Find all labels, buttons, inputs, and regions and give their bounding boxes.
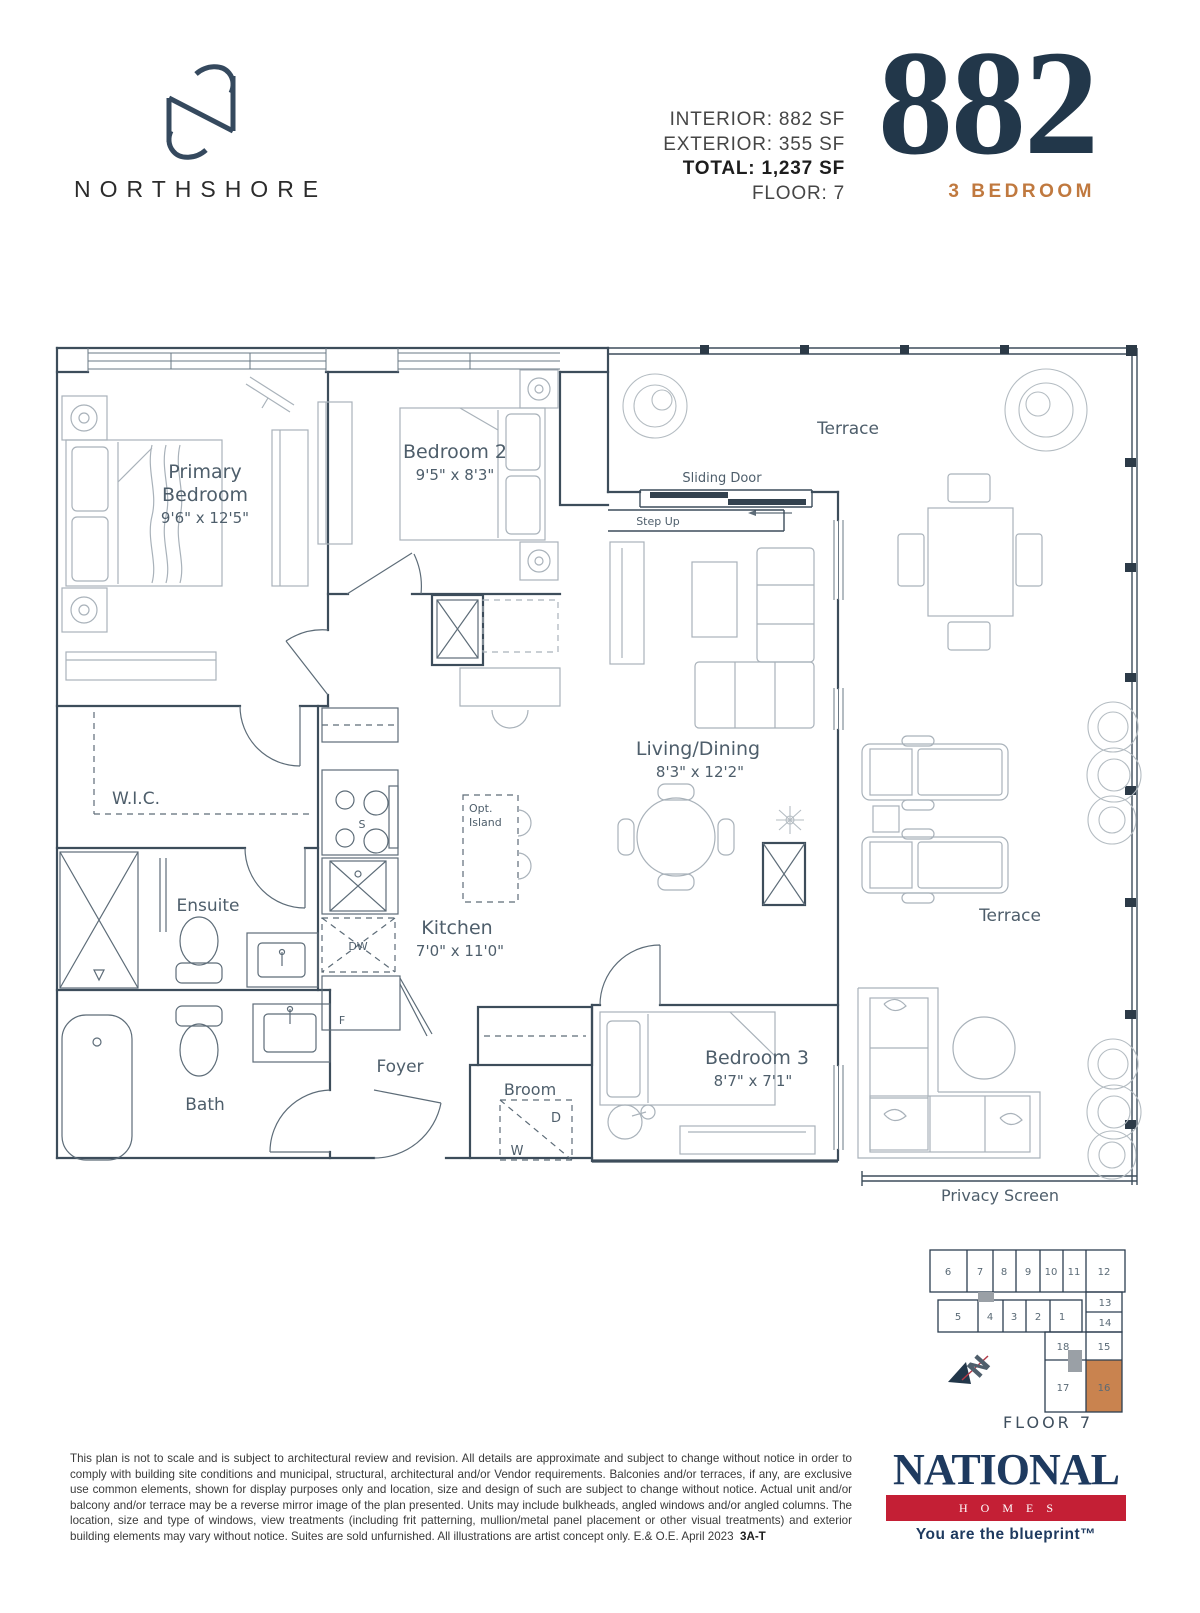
national-logo-homes-bar: HOMES <box>886 1495 1126 1521</box>
bedroom3-dims: 8'7" x 7'1" <box>714 1072 793 1090</box>
keyplan: 6 7 8 9 10 11 12 13 14 5 4 3 2 1 18 15 1… <box>930 1250 1125 1432</box>
bedroom2-label: Bedroom 2 <box>403 441 507 463</box>
dishwasher-label: DW <box>348 940 367 953</box>
keyplan-unit-12: 12 <box>1098 1267 1111 1278</box>
terrace-top-label: Terrace <box>816 419 879 439</box>
living-dining-dims: 8'3" x 12'2" <box>656 763 744 781</box>
keyplan-unit-9: 9 <box>1025 1267 1031 1278</box>
fridge-label: F <box>339 1014 345 1027</box>
keyplan-unit-8: 8 <box>1001 1267 1007 1278</box>
keyplan-unit-5: 5 <box>955 1312 961 1323</box>
room-labels: Primary Bedroom 9'6" x 12'5" Bedroom 2 9… <box>112 419 1059 1205</box>
keyplan-unit-13: 13 <box>1099 1298 1112 1309</box>
bedroom2-furniture <box>318 370 560 728</box>
bathroom-fixtures <box>60 712 330 1160</box>
primary-bedroom-dims: 9'6" x 12'5" <box>161 509 249 527</box>
primary-bedroom-label-2: Bedroom <box>162 484 248 506</box>
keyplan-unit-4: 4 <box>987 1312 993 1323</box>
disclaimer-body: This plan is not to scale and is subject… <box>70 1452 852 1543</box>
keyplan-unit-15: 15 <box>1098 1342 1111 1353</box>
keyplan-unit-18: 18 <box>1057 1342 1070 1353</box>
keyplan-elevator-1 <box>978 1292 994 1302</box>
disclaimer-text: This plan is not to scale and is subject… <box>70 1451 852 1544</box>
keyplan-unit-7: 7 <box>977 1267 983 1278</box>
stove-label: S <box>359 818 366 831</box>
washer-label: W <box>511 1144 524 1159</box>
keyplan-floor-label: FLOOR 7 <box>1003 1413 1093 1432</box>
kitchen-label: Kitchen <box>421 917 492 939</box>
national-logo-tagline: You are the blueprint™ <box>886 1526 1126 1544</box>
broom-label: Broom <box>504 1080 556 1099</box>
privacy-screen-label: Privacy Screen <box>941 1186 1059 1205</box>
wic-label: W.I.C. <box>112 789 160 809</box>
foyer-label: Foyer <box>376 1057 423 1077</box>
north-arrow-icon: N <box>948 1350 996 1384</box>
bedroom3-label: Bedroom 3 <box>705 1047 809 1069</box>
ensuite-label: Ensuite <box>177 896 240 916</box>
national-homes-logo: NATIONAL HOMES You are the blueprint™ <box>886 1446 1126 1544</box>
keyplan-elevator-2 <box>1068 1350 1082 1372</box>
terrace-furniture <box>858 474 1042 1158</box>
keyplan-unit-10: 10 <box>1045 1267 1058 1278</box>
keyplan-unit-1: 1 <box>1059 1312 1065 1323</box>
national-logo-name: NATIONAL <box>886 1446 1126 1494</box>
keyplan-unit-16: 16 <box>1098 1383 1111 1394</box>
plan-code: 3A-T <box>740 1530 766 1543</box>
keyplan-unit-3: 3 <box>1011 1312 1017 1323</box>
opt-island-label-1: Opt. <box>469 802 492 815</box>
floor-plan: Primary Bedroom 9'6" x 12'5" Bedroom 2 9… <box>0 0 1200 1613</box>
door-swings <box>240 553 660 1158</box>
living-furniture <box>610 542 814 890</box>
primary-bedroom-label-1: Primary <box>168 461 241 483</box>
terrace-right-label: Terrace <box>978 906 1041 926</box>
keyplan-unit-6: 6 <box>945 1267 951 1278</box>
sliding-door-label: Sliding Door <box>682 471 762 486</box>
bath-label: Bath <box>185 1095 225 1115</box>
step-up-label: Step Up <box>636 515 680 528</box>
living-dining-label: Living/Dining <box>636 738 760 760</box>
kitchen-fixtures <box>322 708 531 1036</box>
keyplan-unit-2: 2 <box>1035 1312 1041 1323</box>
keyplan-unit-17: 17 <box>1057 1383 1070 1394</box>
keyplan-unit-14: 14 <box>1099 1318 1112 1329</box>
keyplan-unit-11: 11 <box>1068 1267 1081 1278</box>
primary-bedroom-furniture <box>62 377 308 680</box>
dryer-label: D <box>551 1111 561 1126</box>
kitchen-dims: 7'0" x 11'0" <box>416 942 504 960</box>
floorplan-page: { "colors": { "navy": "#22374a", "orange… <box>0 0 1200 1613</box>
bedroom2-dims: 9'5" x 8'3" <box>416 466 495 484</box>
opt-island-label-2: Island <box>469 816 502 829</box>
